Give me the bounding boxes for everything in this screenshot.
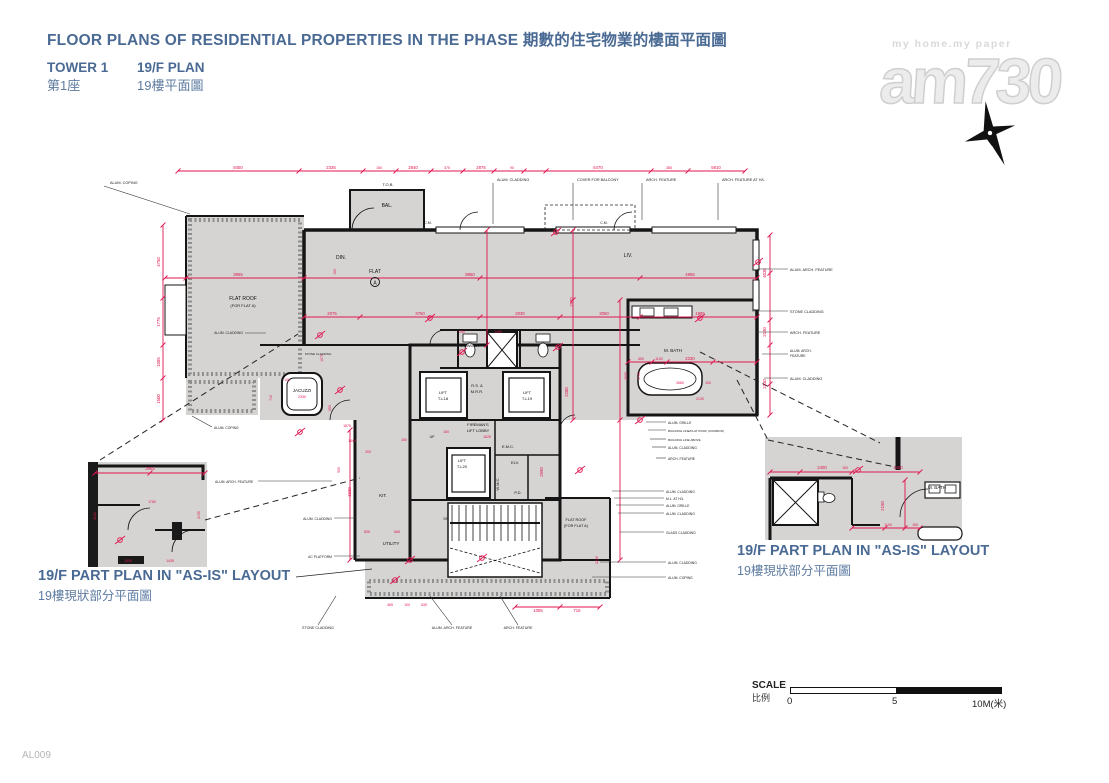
part-plan-right-title: 19/F PART PLAN IN "AS-IS" LAYOUT bbox=[737, 543, 989, 559]
room-label: LIFT bbox=[523, 390, 532, 395]
room-label: E.M.C. bbox=[502, 444, 514, 449]
room-label: BAL. bbox=[382, 203, 393, 209]
callout-label: ALUM. CLADDING bbox=[790, 377, 822, 381]
sheet-code: AL009 bbox=[22, 750, 51, 761]
page-title: FLOOR PLANS OF RESIDENTIAL PROPERTIES IN… bbox=[47, 28, 727, 50]
dim-label: 2230 bbox=[595, 556, 599, 564]
dim-label: 1775 bbox=[156, 317, 161, 327]
callout-label: STONE CLADDING bbox=[305, 352, 332, 356]
dim-label: 715 bbox=[269, 395, 273, 401]
room-label: FLAT bbox=[369, 269, 381, 275]
dim-label: 3330 bbox=[347, 487, 352, 497]
room-label: JACUZZI bbox=[293, 388, 312, 393]
dim-label: 4400 bbox=[893, 465, 903, 470]
callout-label: ALUM. ARCH. FEATURE bbox=[790, 268, 833, 272]
dim-label: 150 bbox=[842, 466, 848, 470]
dim-label: 1780 bbox=[148, 500, 156, 504]
callout-label: COVER FOR BALCONY bbox=[577, 178, 619, 182]
dim-label: 1085 bbox=[156, 357, 161, 367]
callout-label: ARCH. FEATURE AT H/L bbox=[722, 178, 765, 182]
room-label: M. BATH bbox=[664, 348, 682, 353]
scale-label: SCALE bbox=[752, 680, 786, 691]
room-label: T-L19 bbox=[522, 396, 533, 401]
dim-label: 905 bbox=[337, 467, 341, 473]
dim-label: 1435 bbox=[166, 559, 174, 563]
dim-label: 465 bbox=[387, 603, 393, 607]
callout-label: ALUM. GRILLE bbox=[666, 504, 690, 508]
room-label: ELV. bbox=[511, 460, 519, 465]
room-label: T-L18 bbox=[438, 396, 449, 401]
dim-label: 650 bbox=[638, 357, 644, 361]
dim-label: 1500 bbox=[156, 394, 161, 404]
callout-label: ALUM. ARCH. FEATURE bbox=[432, 626, 473, 630]
dim-label: 1985 bbox=[695, 311, 705, 316]
dim-label: 4955 bbox=[685, 272, 695, 277]
callout-label: ALUM. ARCH. FEATURE bbox=[215, 480, 254, 484]
floor-label-zh: 19樓平面圖 bbox=[137, 75, 203, 94]
scale-bar-second-half bbox=[896, 687, 1002, 694]
room-label: LIFT bbox=[458, 458, 467, 463]
dim-label: 2400 bbox=[817, 465, 827, 470]
room-label: UP bbox=[430, 435, 436, 439]
callout-label: AC PLATFORM bbox=[308, 555, 332, 559]
callout-label: ALUM. CLADDING bbox=[668, 446, 697, 450]
room-label: FIREMAN'S bbox=[467, 422, 489, 427]
room-label: (FOR FLAT A) bbox=[564, 524, 589, 528]
dim-label: 8450 bbox=[233, 165, 243, 170]
dim-label: 635 bbox=[421, 603, 427, 607]
dim-label: 3965 bbox=[145, 466, 155, 471]
callout-leader-line bbox=[104, 186, 190, 214]
room-label: M.R.R. bbox=[471, 389, 483, 394]
dim-label: 2130 bbox=[696, 397, 704, 401]
room-label: FLAT ROOF bbox=[229, 296, 257, 302]
dim-label: 6470 bbox=[593, 165, 603, 170]
dim-label: 2190 bbox=[880, 501, 885, 511]
scale-tick-0: 0 bbox=[787, 696, 792, 707]
dim-label: 2330 bbox=[762, 379, 767, 389]
dim-label: 3050 bbox=[599, 311, 609, 316]
floor-label: 19/F PLAN bbox=[137, 60, 205, 75]
dim-label: 2970 bbox=[569, 297, 574, 307]
tower-label: TOWER 1 bbox=[47, 60, 108, 75]
room-label: P.D. bbox=[514, 490, 521, 495]
callout-label: M.L. AT H/L bbox=[666, 497, 684, 501]
room-label: C.M. bbox=[600, 221, 607, 225]
dim-label: 1400 bbox=[494, 330, 502, 334]
room-label: KIT. bbox=[379, 493, 387, 498]
dim-label: 150 bbox=[376, 166, 382, 170]
room-label: DIN. bbox=[336, 255, 346, 261]
callout-label: STONE CLADDING bbox=[302, 626, 334, 630]
dim-label: 1875 bbox=[343, 424, 351, 428]
callout-leader-line bbox=[430, 596, 452, 625]
callout-label: ALUM. ARCH. bbox=[790, 349, 812, 353]
part-plan-right-title-zh: 19樓現狀部分平面圖 bbox=[737, 560, 851, 579]
dim-label: 2075 bbox=[327, 311, 337, 316]
dim-label: 2590 bbox=[539, 467, 544, 477]
room-label: DN bbox=[443, 517, 449, 521]
room-label: C.M. bbox=[424, 221, 431, 225]
callout-leader-line bbox=[192, 416, 212, 427]
callout-label: BUILDING LINE/FLAT ROOF (COMMON) bbox=[668, 429, 724, 433]
room-label: POWDER bbox=[461, 343, 479, 348]
callout-label: ALUM. CLADDING bbox=[666, 490, 695, 494]
dim-label: 2130 bbox=[762, 327, 767, 337]
dim-label: 2280 bbox=[564, 387, 569, 397]
callout-label: ALUM. CLADDING bbox=[668, 561, 697, 565]
stairs bbox=[448, 503, 542, 577]
part-plan-left-leader bbox=[296, 569, 372, 577]
scale-tick-10: 10M(米) bbox=[972, 696, 1006, 710]
callout-leader-line bbox=[318, 596, 336, 625]
room-label: T-L20 bbox=[457, 464, 468, 469]
dim-label: 1085 bbox=[533, 608, 543, 613]
callout-label: ARCH. FEATURE bbox=[646, 178, 677, 182]
dim-label: 715 bbox=[573, 608, 581, 613]
dim-label: 1700 bbox=[637, 372, 641, 380]
callout-label: ALUM. CLADDING bbox=[497, 178, 529, 182]
callout-label: ALUM. COPING bbox=[110, 181, 138, 185]
scale-label-zh: 比例 bbox=[752, 691, 770, 704]
dim-label: 150 bbox=[333, 269, 337, 275]
part-plan-left-title-zh: 19樓現狀部分平面圖 bbox=[38, 585, 152, 604]
dim-label: 2030 bbox=[515, 311, 525, 316]
dim-label: 2330 bbox=[298, 395, 306, 399]
dim-label: 100 bbox=[404, 603, 410, 607]
room-label: LIV. bbox=[624, 253, 632, 259]
dim-label: 1100 bbox=[655, 357, 663, 361]
room-label: UTILITY bbox=[383, 541, 400, 546]
callout-label: ALUM. COPING bbox=[214, 426, 239, 430]
dim-label: 805 bbox=[364, 530, 370, 534]
callout-label: STONE CLADDING bbox=[790, 310, 824, 314]
dim-label: 2875 bbox=[476, 165, 486, 170]
dim-label: 1625 bbox=[483, 435, 491, 439]
room-label: FLAT ROOF bbox=[566, 518, 588, 522]
floorplan-page: { "colors": {"accent_blue":"#4a6a94","di… bbox=[0, 0, 1109, 783]
watermark-brand-logo: am730 bbox=[877, 44, 1061, 118]
callout-label: FEATURE bbox=[790, 354, 806, 358]
dim-label: 200 bbox=[365, 450, 371, 454]
part-plan-left-title: 19/F PART PLAN IN "AS-IS" LAYOUT bbox=[38, 568, 290, 584]
callout-label: ARCH. FEATURE bbox=[504, 626, 533, 630]
callout-label: ALUM. COPING bbox=[668, 576, 693, 580]
callout-label: ARCH. FEATURE bbox=[790, 331, 821, 335]
dim-label: 385 bbox=[666, 166, 672, 170]
dim-label: 250 bbox=[459, 330, 465, 334]
dim-label: 655 bbox=[328, 405, 332, 411]
room-label: R.S. & bbox=[471, 383, 483, 388]
dim-label: 665 bbox=[394, 530, 400, 534]
room-label: T.O.B. bbox=[382, 182, 393, 187]
dim-label: 2195 bbox=[197, 511, 201, 519]
callout-leader-line bbox=[500, 596, 518, 625]
dim-label: 8950 bbox=[465, 272, 475, 277]
callout-label: GLASS CLADDING bbox=[666, 531, 696, 535]
dim-label: 90 bbox=[510, 166, 514, 170]
dim-label: 3100 bbox=[93, 512, 97, 520]
callout-label: ALUM. CLADDING bbox=[303, 517, 332, 521]
dim-label: 2335 bbox=[326, 165, 336, 170]
room-label: LIFT bbox=[439, 390, 448, 395]
dim-label: 5810 bbox=[711, 165, 721, 170]
dim-label: 100 bbox=[705, 381, 711, 385]
dim-label: 150 bbox=[401, 438, 407, 442]
room-label: M. BATH bbox=[928, 485, 946, 490]
room-label: LIFT LOBBY bbox=[467, 428, 490, 433]
dim-label: 2680 bbox=[676, 381, 684, 385]
dim-label: 1440 bbox=[348, 439, 356, 443]
dim-label: 2840 bbox=[408, 165, 418, 170]
dim-label: 2690 bbox=[624, 372, 628, 380]
dim-label: 150 bbox=[912, 523, 918, 527]
dim-label: 100 bbox=[284, 378, 290, 382]
tower-label-zh: 第1座 bbox=[47, 75, 80, 94]
dim-label: 2330 bbox=[685, 356, 695, 361]
callout-label: ARCH. FEATURE bbox=[668, 457, 696, 461]
callout-label: ALUM. CLADDING bbox=[666, 512, 695, 516]
dim-label: 1100 bbox=[884, 523, 892, 527]
dim-label: 150 bbox=[443, 430, 449, 434]
room-label: W.M.C. bbox=[495, 477, 500, 490]
dim-label: 3750 bbox=[415, 311, 425, 316]
callout-label: ALUM. CLADDING bbox=[214, 331, 243, 335]
callout-label: BUILDING LINE ABOVE bbox=[668, 438, 701, 442]
dim-label: 1430 bbox=[124, 559, 132, 563]
room-label: (FOR FLAT A) bbox=[230, 303, 256, 308]
dim-label: 3965 bbox=[233, 272, 243, 277]
dim-label: 4750 bbox=[156, 257, 161, 267]
scale-bar-first-half bbox=[790, 687, 897, 694]
dim-label: 375 bbox=[444, 166, 450, 170]
callout-label: ALUM. GRILLE bbox=[668, 421, 692, 425]
scale-tick-5: 5 bbox=[892, 696, 897, 707]
